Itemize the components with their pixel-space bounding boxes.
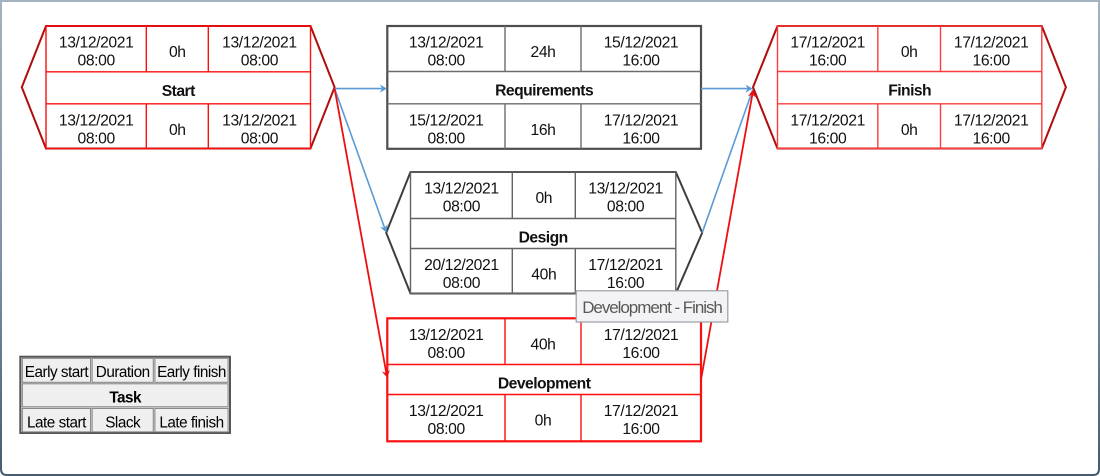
svg-text:20/12/2021: 20/12/2021 xyxy=(424,257,499,274)
svg-text:13/12/2021: 13/12/2021 xyxy=(222,35,297,52)
svg-text:17/12/2021: 17/12/2021 xyxy=(604,403,679,420)
svg-text:17/12/2021: 17/12/2021 xyxy=(790,35,865,52)
svg-text:17/12/2021: 17/12/2021 xyxy=(588,257,663,274)
svg-text:08:00: 08:00 xyxy=(428,421,466,438)
svg-text:Development: Development xyxy=(498,376,592,393)
svg-text:13/12/2021: 13/12/2021 xyxy=(59,113,134,130)
svg-text:16:00: 16:00 xyxy=(973,131,1011,148)
svg-text:Late start: Late start xyxy=(27,414,87,431)
svg-text:40h: 40h xyxy=(531,336,556,353)
svg-text:16:00: 16:00 xyxy=(622,131,660,148)
svg-text:08:00: 08:00 xyxy=(428,53,466,70)
svg-text:0h: 0h xyxy=(901,44,918,61)
svg-text:13/12/2021: 13/12/2021 xyxy=(59,35,134,52)
svg-text:08:00: 08:00 xyxy=(428,345,466,362)
svg-text:0h: 0h xyxy=(901,122,918,139)
svg-text:17/12/2021: 17/12/2021 xyxy=(604,113,679,130)
svg-text:15/12/2021: 15/12/2021 xyxy=(604,35,679,52)
svg-text:08:00: 08:00 xyxy=(428,131,466,148)
svg-text:0h: 0h xyxy=(535,190,552,207)
svg-text:08:00: 08:00 xyxy=(443,275,481,292)
svg-text:16:00: 16:00 xyxy=(607,275,645,292)
svg-text:08:00: 08:00 xyxy=(443,199,481,216)
svg-text:Finish: Finish xyxy=(888,83,931,100)
svg-text:0h: 0h xyxy=(169,44,186,61)
svg-text:13/12/2021: 13/12/2021 xyxy=(409,403,484,420)
svg-text:15/12/2021: 15/12/2021 xyxy=(409,113,484,130)
svg-text:17/12/2021: 17/12/2021 xyxy=(604,327,679,344)
svg-text:16:00: 16:00 xyxy=(809,131,847,148)
svg-text:13/12/2021: 13/12/2021 xyxy=(409,35,484,52)
svg-text:17/12/2021: 17/12/2021 xyxy=(790,113,865,130)
svg-text:16:00: 16:00 xyxy=(973,53,1011,70)
svg-text:13/12/2021: 13/12/2021 xyxy=(588,181,663,198)
svg-text:13/12/2021: 13/12/2021 xyxy=(222,113,297,130)
svg-text:16:00: 16:00 xyxy=(622,345,660,362)
svg-text:Start: Start xyxy=(162,83,196,100)
svg-text:Duration: Duration xyxy=(96,364,150,381)
svg-text:0h: 0h xyxy=(169,122,186,139)
svg-text:08:00: 08:00 xyxy=(78,53,116,70)
svg-text:16:00: 16:00 xyxy=(809,53,847,70)
svg-text:24h: 24h xyxy=(531,44,556,61)
svg-text:08:00: 08:00 xyxy=(607,199,645,216)
svg-text:16h: 16h xyxy=(531,122,556,139)
svg-text:Task: Task xyxy=(109,390,142,407)
svg-text:13/12/2021: 13/12/2021 xyxy=(424,181,499,198)
svg-text:08:00: 08:00 xyxy=(241,131,279,148)
svg-text:Late finish: Late finish xyxy=(159,414,223,431)
svg-text:16:00: 16:00 xyxy=(622,53,660,70)
svg-text:08:00: 08:00 xyxy=(241,53,279,70)
svg-text:Development - Finish: Development - Finish xyxy=(582,298,722,317)
svg-text:16:00: 16:00 xyxy=(622,421,660,438)
svg-text:Slack: Slack xyxy=(105,414,141,431)
svg-text:17/12/2021: 17/12/2021 xyxy=(954,35,1029,52)
svg-text:Early finish: Early finish xyxy=(157,364,226,381)
svg-text:13/12/2021: 13/12/2021 xyxy=(409,327,484,344)
svg-text:Requirements: Requirements xyxy=(495,83,594,100)
svg-text:Early start: Early start xyxy=(25,364,90,381)
svg-text:08:00: 08:00 xyxy=(78,131,116,148)
svg-text:17/12/2021: 17/12/2021 xyxy=(954,113,1029,130)
svg-text:Design: Design xyxy=(519,230,568,247)
svg-text:40h: 40h xyxy=(531,267,556,284)
svg-text:0h: 0h xyxy=(535,413,552,430)
